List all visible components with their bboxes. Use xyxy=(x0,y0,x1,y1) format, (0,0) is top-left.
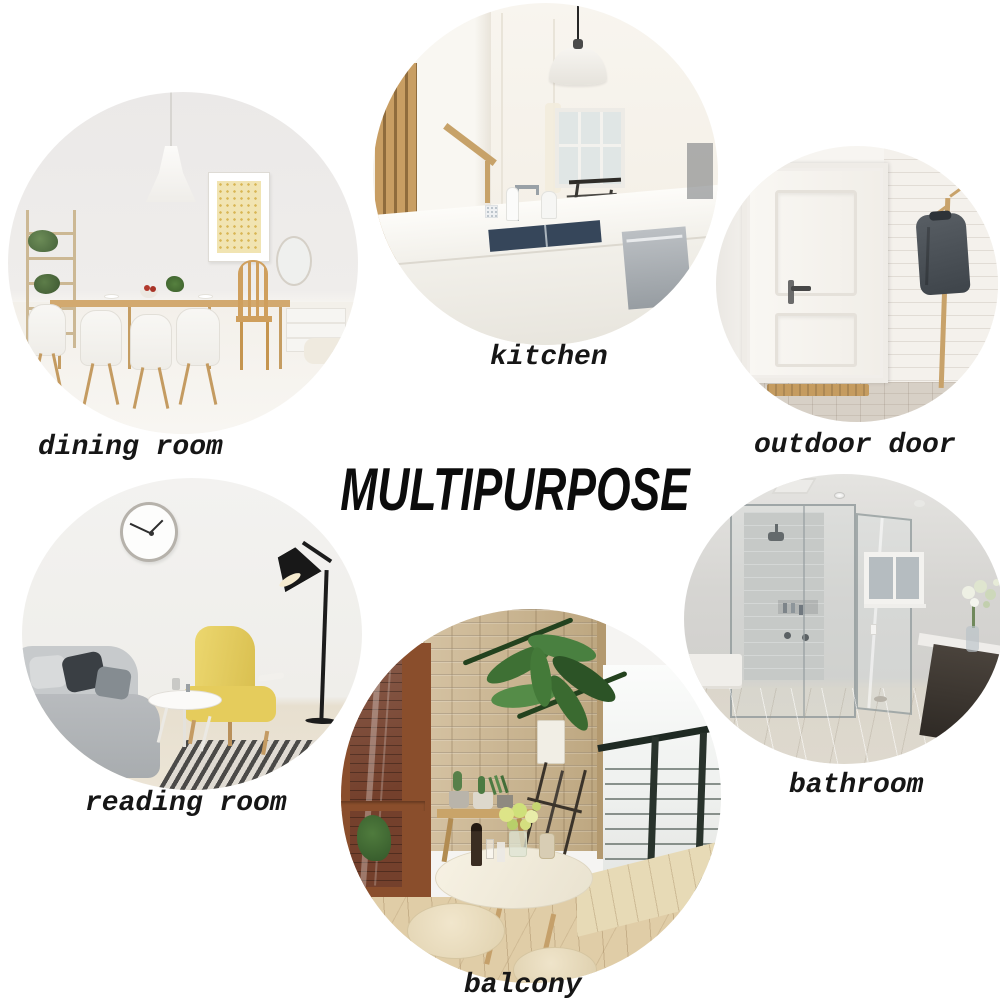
window xyxy=(555,108,625,188)
glass-door xyxy=(341,643,431,899)
round-stool xyxy=(407,903,505,959)
pouf xyxy=(304,338,350,364)
wine-bottle xyxy=(471,823,482,866)
handrail-post xyxy=(485,161,490,203)
glass-shower-panel xyxy=(730,504,856,718)
doormat xyxy=(767,384,869,396)
pillow xyxy=(94,666,132,701)
white-chair xyxy=(28,304,66,356)
window xyxy=(864,552,924,604)
collage-title: MULTIPURPOSE xyxy=(340,455,689,524)
label-reading-room: reading room xyxy=(85,788,287,819)
candle-jar xyxy=(539,833,555,859)
dishwasher xyxy=(622,226,693,309)
recessed-light xyxy=(834,492,845,499)
product-collage: MULTIPURPOSE dining room kitchen outdoor… xyxy=(0,0,1000,1000)
reading-room-photo xyxy=(22,478,362,790)
background-shelf xyxy=(687,143,713,199)
floor-lamp-pole xyxy=(319,570,328,720)
wall-art-frame xyxy=(208,172,270,262)
jacket xyxy=(915,212,970,295)
ceiling-vent xyxy=(771,478,816,494)
fruit xyxy=(144,285,150,291)
bathroom-photo xyxy=(684,474,1000,764)
wall-clock xyxy=(120,502,178,562)
label-outdoor-door: outdoor door xyxy=(754,430,956,461)
flower-vase xyxy=(966,626,979,652)
hanging-plant xyxy=(28,230,58,252)
dining-room-photo xyxy=(8,92,358,434)
cactus xyxy=(453,771,462,791)
flower-vase xyxy=(509,831,527,857)
pendant-lamp xyxy=(146,146,196,202)
floor-drain xyxy=(874,696,887,702)
table-decor xyxy=(172,678,180,690)
door-rail xyxy=(341,801,425,811)
white-chair xyxy=(176,308,220,366)
cup xyxy=(485,205,498,218)
white-chair xyxy=(80,310,122,366)
armrest xyxy=(258,672,285,682)
table-plant xyxy=(166,276,184,292)
kitchen-photo xyxy=(373,3,718,345)
wine-glasses xyxy=(486,839,494,859)
striped-rug xyxy=(158,740,362,790)
bottle xyxy=(506,187,519,221)
label-bathroom: bathroom xyxy=(789,770,923,801)
plate xyxy=(198,294,213,299)
pillow xyxy=(29,654,68,689)
flower-pots xyxy=(449,791,469,808)
plate xyxy=(104,294,119,299)
flower-stems xyxy=(972,602,975,628)
fruit-bowl xyxy=(140,290,158,298)
plant-bench xyxy=(437,809,533,818)
sofa xyxy=(22,694,160,778)
door-handle xyxy=(788,280,794,304)
balcony-photo xyxy=(341,609,721,983)
vanity-cabinet xyxy=(919,644,1000,748)
wall-mirror xyxy=(276,236,312,286)
flower-bouquet xyxy=(962,586,975,599)
reflected-plant xyxy=(357,815,391,861)
clock-center xyxy=(149,531,154,536)
wooden-chair xyxy=(238,260,268,318)
plant-pot xyxy=(537,720,565,764)
pendant-lamp-cord xyxy=(170,92,172,148)
label-kitchen: kitchen xyxy=(490,342,608,373)
label-dining-room: dining room xyxy=(38,432,223,463)
side-table xyxy=(148,690,222,710)
vase xyxy=(541,191,557,219)
door-panel xyxy=(775,313,857,367)
glass-shower-door xyxy=(856,513,912,715)
label-balcony: balcony xyxy=(464,970,582,1000)
outdoor-door-photo xyxy=(716,146,998,422)
door-frame xyxy=(742,163,888,383)
white-chair xyxy=(130,314,172,370)
wall-art xyxy=(217,181,261,253)
wall-outlet xyxy=(870,624,877,635)
flower-bouquet xyxy=(499,807,514,822)
pendant-dome-lamp xyxy=(549,47,607,85)
